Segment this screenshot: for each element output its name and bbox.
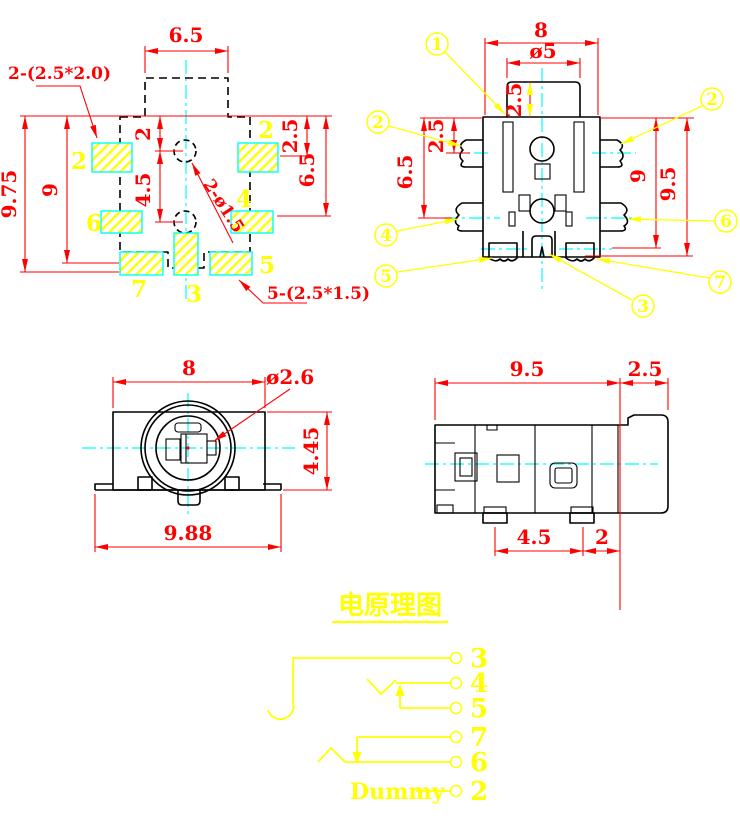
note-bottom-pads: 5-(2.5*1.5) [267,284,370,304]
contact-left [166,439,180,460]
foot-right-root [571,507,593,513]
dim-text-right-row1: 2.5 [278,119,302,154]
pin-terminal-7 [451,732,462,743]
callout-2-right: 2 [621,88,723,144]
callout-7: 7 [597,259,731,293]
window-inner [555,468,572,483]
dim-text-flange-width: 9.88 [164,521,213,545]
pin-number-6: 6 [470,748,488,778]
ext-top [435,378,668,610]
callout-7-number: 7 [714,273,726,293]
pad-2-right [238,143,278,172]
callout-1: 1 [426,33,505,114]
dim-text-body-depth: 9.5 [510,357,545,381]
bracket-left-inner [460,458,472,476]
left-detail-lines [435,443,455,490]
callout-2-right-number: 2 [706,90,718,110]
callout-4: 4 [375,219,458,246]
callout-5: 5 [375,258,492,287]
pad-label-2-right: 2 [258,117,274,144]
pin-number-2: 2 [470,777,488,807]
pad-2-left [92,143,132,172]
view-side: 9.5 2.5 4.5 2 [425,357,668,610]
dim-text-height: 4.45 [299,427,323,476]
bracket-left [455,453,477,481]
dim-text-pin-row2: 6.5 [393,155,417,190]
schematic-title: 电原理图 [338,590,442,620]
clip-right-lower [600,203,628,231]
pin-terminal-5 [451,703,462,714]
dim-text-right-row2: 6.5 [295,153,319,188]
dim-text-feet-pitch: 4.5 [517,525,552,549]
bump-left [138,477,152,490]
connector-drawing-svg: 2 2 6 4 7 3 5 6.5 9.75 9 2 4.5 2.5 6.5 2… [0,0,740,824]
wire-tip-contact [268,658,451,719]
clip-bottom-right [566,243,594,261]
pad-6 [101,211,142,233]
pad-label-4: 4 [236,186,252,213]
leader-pin-dia [214,389,290,441]
pad-label-5: 5 [259,252,275,279]
view-schematic: 电原理图 Dummy 3 4 5 7 6 2 [268,590,488,807]
switch-contact-upper [367,679,396,694]
dim-text-overall-height: 9.5 [656,167,680,202]
bottom-center-recess [523,231,555,257]
slot-small-1 [519,195,530,211]
dummy-label: Dummy [350,779,446,805]
corner-pad [437,505,453,513]
pin-terminal-6 [451,757,462,768]
dim-text-boss-dia: ø5 [529,39,556,63]
bump-right [225,477,239,490]
callout-4-number: 4 [380,226,392,246]
clip-bottom-left [489,243,517,261]
callout-2-left-number: 2 [372,113,384,133]
dim-text-hole1-offset: 2 [131,127,155,141]
slot-left [503,122,513,192]
foot-left-root [484,507,506,513]
pin-terminal-3 [451,653,462,664]
pad-label-6: 6 [86,210,102,237]
slot-small-3 [509,212,515,226]
pin-number-5: 5 [470,694,488,724]
dim-text-feet-to-edge: 2 [595,525,609,549]
dim-text-overall-height: 9.75 [0,170,21,219]
slot-right [574,122,584,192]
callout-6-number: 6 [720,212,732,232]
foot-left [483,513,507,523]
clip-left-lower [456,203,484,231]
pad-label-2-left: 2 [71,148,87,175]
window-outer [550,463,577,488]
pad-label-7: 7 [131,276,147,303]
note-side-pads: 2-(2.5*2.0) [8,64,111,84]
callout-6: 6 [628,210,737,232]
pad-5 [210,252,252,275]
pad-3 [174,233,198,275]
ext-left-bottom [20,263,119,272]
view-front: 8 ø2.6 4.45 9.88 [82,356,332,552]
slot-small-2 [555,195,566,211]
dim-text-pin-row1: 2.5 [424,119,448,154]
center-mark [186,446,189,449]
arrow-up-icon [396,684,405,696]
pin-terminal-2 [451,786,462,797]
slot-small-4 [566,212,572,226]
callout-5-number: 5 [380,267,392,287]
callout-1-number: 1 [431,35,443,55]
pad-label-3: 3 [186,281,202,308]
dim-text-hole-pitch: 4.5 [131,173,155,208]
bottom-tab [178,490,200,505]
pad-7 [120,252,163,275]
dim-text-width: 8 [182,356,196,380]
switch-contact-lower [318,748,345,762]
callout-3-number: 3 [637,297,649,317]
ext-holes [155,151,183,222]
dim-text-pad-rows-height: 9 [38,183,62,197]
bracket-center [497,455,519,482]
technical-drawing-page: 2 2 6 4 7 3 5 6.5 9.75 9 2 4.5 2.5 6.5 2… [0,0,740,824]
pin-terminal-4 [451,678,462,689]
callout-3: 3 [549,254,654,317]
dim-text-top-width: 6.5 [169,23,204,47]
dim-text-pin-row3: 9 [626,169,650,183]
body-outline [113,412,265,490]
dim-text-barrel: 2.5 [628,357,663,381]
view-bottom: 8 ø5 2.5 2.5 6.5 9 9.5 1 2 2 [367,18,737,317]
dim-text-boss-height: 2.5 [502,83,526,118]
foot-right [570,513,594,523]
view-pcb-footprint: 2 2 6 4 7 3 5 6.5 9.75 9 2 4.5 2.5 6.5 2… [0,23,370,308]
dim-text-pin-dia: ø2.6 [266,365,314,389]
